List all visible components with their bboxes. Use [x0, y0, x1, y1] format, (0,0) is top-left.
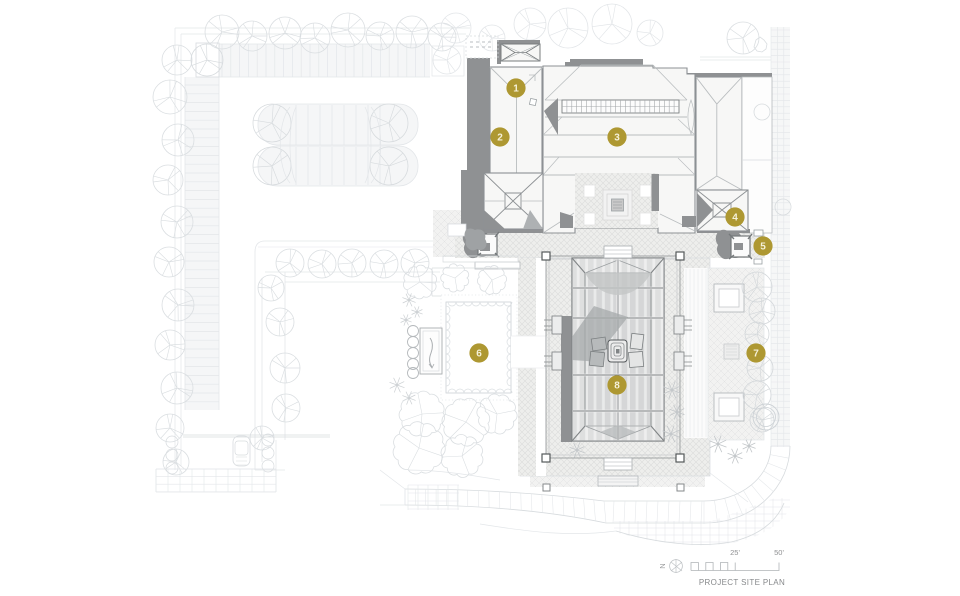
- svg-text:50': 50': [774, 548, 784, 557]
- svg-text:PROJECT SITE PLAN: PROJECT SITE PLAN: [699, 578, 785, 587]
- svg-text:2: 2: [497, 133, 503, 144]
- svg-text:N: N: [658, 563, 667, 568]
- svg-text:7: 7: [753, 349, 759, 360]
- svg-text:5: 5: [760, 242, 766, 253]
- svg-text:4: 4: [732, 213, 738, 224]
- svg-text:8: 8: [614, 381, 620, 392]
- svg-text:1: 1: [513, 84, 519, 95]
- svg-text:6: 6: [476, 349, 482, 360]
- svg-text:25': 25': [730, 548, 740, 557]
- svg-text:3: 3: [614, 133, 620, 144]
